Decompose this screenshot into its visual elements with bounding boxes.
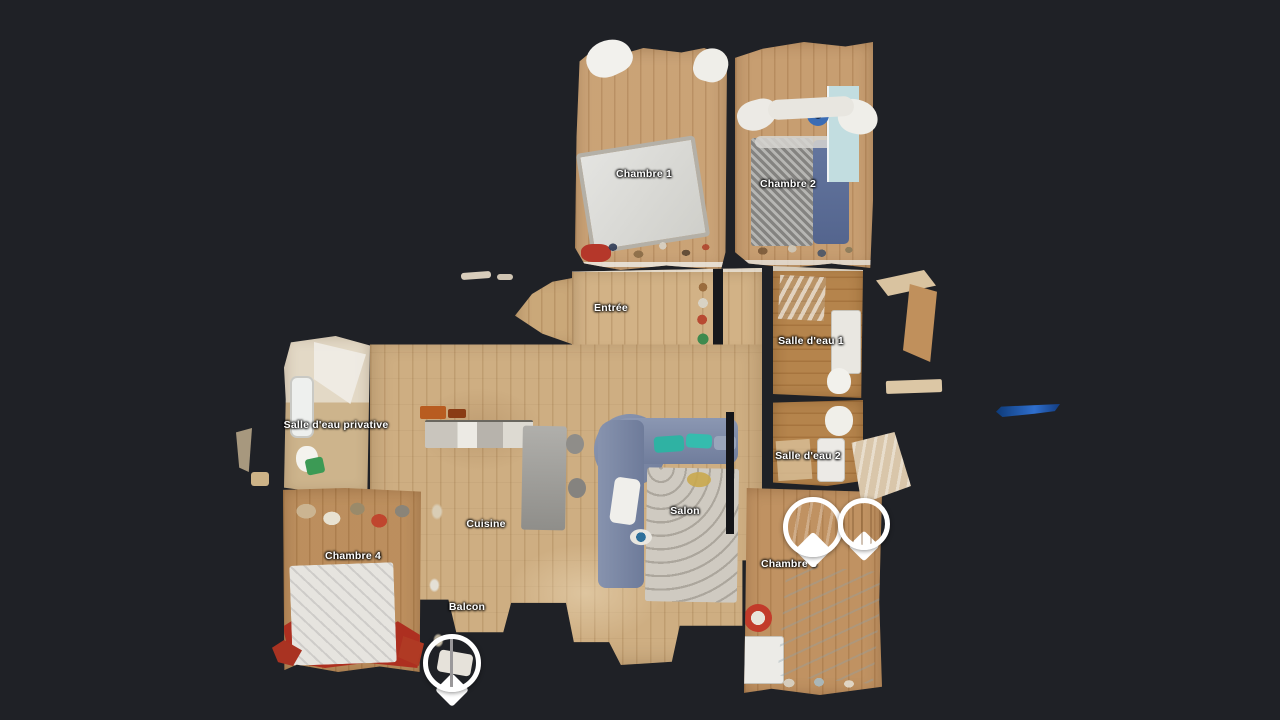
room-salle-deau-1[interactable]: [773, 266, 863, 398]
shelf-clutter: [287, 492, 415, 540]
room-salle-deau-privative[interactable]: [284, 336, 370, 494]
room-label-chambre-4: Chambre 4: [325, 550, 381, 562]
wall-column: [713, 268, 723, 358]
room-label-salle-deau-2: Salle d'eau 2: [775, 450, 841, 462]
room-label-balcon: Balcon: [449, 601, 485, 613]
dollhouse-view-canvas[interactable]: Chambre 1 Chambre 2 Entrée Salle d'eau 1…: [0, 0, 1280, 720]
toilet: [827, 368, 851, 394]
chair: [566, 434, 584, 454]
scan-artifact: [236, 428, 252, 472]
red-bowl: [744, 604, 772, 632]
wall-segment: [726, 412, 734, 534]
outer-wall-strip: [735, 260, 873, 265]
cushion-teal: [653, 435, 684, 453]
floor-clutter: [599, 236, 715, 264]
room-label-salon: Salon: [670, 505, 700, 517]
shower-glass: [778, 275, 826, 321]
room-label-chambre-1: Chambre 1: [616, 168, 672, 180]
bed: [777, 564, 882, 684]
room-label-entree: Entrée: [594, 302, 628, 314]
cushion-teal: [686, 433, 713, 448]
rug: [645, 467, 739, 603]
room-chambre-2[interactable]: [735, 42, 873, 268]
pin-panorama-preview: [428, 639, 476, 687]
dining-table: [521, 426, 567, 531]
shelf-items: [694, 280, 712, 352]
kitchen-shelf-pans: [420, 406, 446, 419]
scan-artifact: [886, 379, 942, 394]
outer-wall-strip: [575, 262, 727, 267]
kitchen-counter: [425, 420, 533, 448]
pin-panorama-preview: [788, 502, 838, 552]
chair: [568, 478, 586, 498]
outer-wall-strip: [572, 268, 762, 272]
scan-artifact: [903, 284, 937, 362]
scan-artifact: [461, 271, 491, 280]
floor-clutter: [774, 674, 874, 692]
bowl: [630, 529, 652, 545]
scan-artifact: [251, 472, 269, 486]
outer-wall-strip: [773, 266, 863, 271]
room-chambre-1[interactable]: [575, 48, 727, 270]
room-label-salle-deau-privative: Salle d'eau privative: [284, 419, 389, 431]
gold-plate: [687, 472, 711, 487]
pin-photo-disc: [838, 498, 890, 550]
room-label-chambre-2: Chambre 2: [760, 178, 816, 190]
bed-blanket: [751, 138, 813, 246]
pin-photo-disc: [783, 497, 843, 557]
wall-fragment: [314, 342, 366, 404]
room-label-cuisine: Cuisine: [466, 518, 505, 530]
pin-panorama-preview: [843, 503, 885, 545]
pin-photo-disc: [423, 634, 481, 692]
room-chambre-4[interactable]: [283, 488, 421, 672]
room-label-salle-deau-1: Salle d'eau 1: [778, 335, 844, 347]
scan-artifact: [497, 274, 513, 280]
mattress: [289, 562, 396, 666]
scan-artifact-blue: [996, 404, 1060, 417]
kitchen-shelf-pans: [448, 409, 466, 418]
room-salle-deau-2[interactable]: [773, 400, 863, 486]
toilet: [825, 406, 853, 436]
green-towel: [305, 456, 326, 475]
floor-clutter: [745, 240, 863, 262]
